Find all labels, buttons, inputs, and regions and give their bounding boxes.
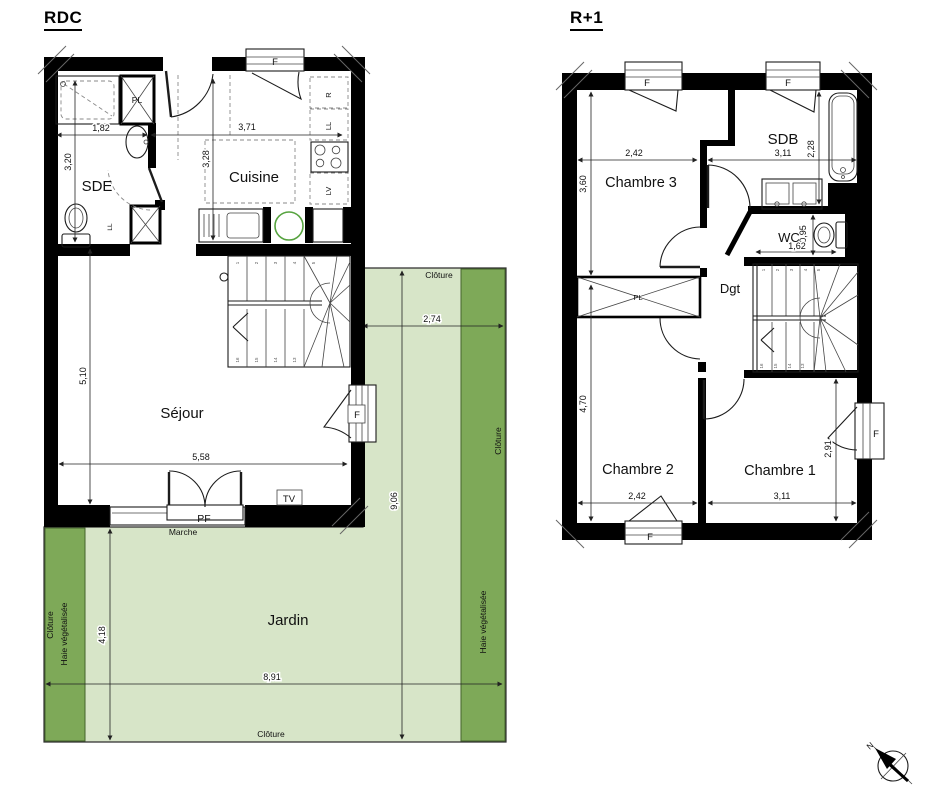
stair-step-number: 16: [235, 357, 240, 363]
window-chambre3-top: F: [625, 62, 682, 111]
staircase-rdc: 1 2 3 4 5 16 15 14 13: [220, 256, 350, 367]
stair-step-number: 13: [800, 363, 805, 369]
window-label-f-right: F: [354, 410, 360, 421]
dim-ch3-height: 3,60: [578, 175, 588, 193]
door-sde: [108, 168, 162, 210]
round-table: [275, 212, 303, 240]
room-label-cuisine: Cuisine: [229, 169, 279, 186]
dim-sdb-width: 3,11: [775, 148, 792, 158]
stair-step-number: 2: [254, 261, 259, 264]
window-label-f-top: F: [272, 57, 278, 68]
stair-step-number: 13: [292, 357, 297, 363]
window-label-f-top1: F: [644, 78, 650, 89]
fence-label-top: Clôture: [425, 270, 453, 280]
tv-outlet: TV: [277, 490, 302, 505]
closet-label-pl-r1: PL: [633, 293, 642, 302]
appliance-label-ll-sde: LL: [107, 223, 114, 231]
garden-dim-height-left: 4,18: [97, 626, 107, 644]
dim-sdb-height: 2,28: [806, 140, 816, 158]
kitchen-sink: [199, 209, 263, 242]
stair-step-number: 4: [292, 261, 297, 264]
room-label-sde: SDE: [82, 178, 113, 195]
dim-sde-height: 3,20: [63, 153, 73, 171]
fence-label-right: Clôture: [493, 427, 503, 455]
dim-sejour-width: 5,58: [192, 452, 210, 462]
toilet-r1: [814, 222, 847, 248]
dim-sejour-height: 5,10: [78, 367, 88, 385]
door-chambre1: [704, 379, 744, 419]
stair-step-number: 3: [789, 268, 794, 271]
dim-ch2-width: 2,42: [628, 491, 646, 501]
appliance-label-lv: LV: [324, 187, 333, 196]
room-label-chambre2: Chambre 2: [602, 462, 674, 478]
closet-sde-small: [131, 206, 160, 243]
stair-step-number: 14: [273, 357, 278, 363]
fence-label-left: Clôture: [45, 611, 55, 639]
hedge-strip-right: [461, 269, 505, 741]
dim-sde-width: 1,82: [92, 123, 110, 133]
wc-chamfer-wall: [727, 212, 750, 255]
north-letter: N: [865, 740, 876, 752]
stair-step-number: 2: [775, 268, 780, 271]
rdc-dimensions: 1,82 3,71 3,20 3,28 5,10 5,58: [57, 79, 347, 504]
plan-drawing: 2,74 9,06 4,18 8,91 Clôture Clôture Clôt…: [0, 0, 930, 800]
dim-ch3-width: 2,42: [625, 148, 643, 158]
appliance-label-ll: LL: [324, 122, 333, 130]
stair-step-number: 5: [816, 268, 821, 271]
stair-step-number: 1: [761, 268, 766, 271]
stair-step-number: 15: [254, 357, 259, 363]
garden-dim-width-right: 2,74: [423, 314, 441, 324]
stair-step-number: 16: [759, 363, 764, 369]
stair-step-number: 4: [803, 268, 808, 271]
stair-step-number: 15: [773, 363, 778, 369]
room-label-jardin: Jardin: [268, 612, 309, 629]
dim-ch2-height: 4,70: [578, 395, 588, 413]
kitchen-cabinet: [313, 209, 343, 242]
door-entry: [166, 71, 213, 117]
door-sdb: [708, 165, 750, 208]
stair-step-number: 1: [235, 261, 240, 264]
bathtub: [829, 93, 857, 181]
r1-plan: 1 2 3 4 5 16 15 14 13 F: [556, 62, 884, 548]
dim-cuisine-height: 3,28: [201, 150, 211, 168]
fence-label-bottom: Clôture: [257, 729, 285, 739]
dim-ch1-width: 3,11: [774, 491, 791, 501]
tv-label: TV: [283, 494, 296, 505]
rdc-plan: F F: [38, 46, 376, 537]
hedge-label-right: Haie végétalisée: [478, 590, 488, 653]
garden-dim-width-bottom: 8,91: [263, 672, 281, 682]
washbasin-sde: [126, 126, 148, 158]
room-label-sejour: Séjour: [160, 405, 203, 422]
room-label-chambre3: Chambre 3: [605, 175, 677, 191]
window-sdb-top: F: [766, 62, 820, 112]
window-cuisine-top: F: [246, 49, 304, 99]
door-label-pf: PF: [197, 513, 210, 525]
room-label-sdb: SDB: [768, 131, 799, 148]
room-label-chambre1: Chambre 1: [744, 463, 816, 479]
floorplan-sheet: RDC R+1 2,74 9,06 4,18 8,91 Clôture Clôt…: [0, 0, 930, 800]
french-door-pf: [110, 471, 245, 525]
door-chambre2: [660, 318, 700, 359]
staircase-r1: 1 2 3 4 5 16 15 14 13: [753, 264, 858, 372]
dim-cuisine-width: 3,71: [238, 122, 256, 132]
hedge-label-left: Haie végétalisée: [59, 602, 69, 665]
stair-step-number: 14: [787, 363, 792, 369]
window-label-f-right: F: [873, 429, 879, 440]
window-label-f-top2: F: [785, 78, 791, 89]
cooktop: [311, 142, 348, 172]
room-label-dgt: Dgt: [720, 281, 741, 296]
stair-step-number: 5: [311, 261, 316, 264]
step-label-marche: Marche: [169, 527, 198, 537]
room-label-wc: WC: [778, 230, 800, 245]
toilet-rdc: [62, 204, 90, 247]
door-chambre3: [660, 227, 700, 267]
stair-step-number: 3: [273, 261, 278, 264]
closet-label-pl: PL: [132, 95, 143, 105]
compass-icon: N: [865, 740, 912, 784]
shower: [56, 76, 119, 124]
window-label-f-bottom: F: [647, 532, 653, 543]
garden-dim-height-right: 9,06: [389, 492, 399, 510]
double-washbasin: [762, 179, 822, 209]
appliance-label-fridge: R: [324, 92, 333, 98]
window-sejour-right: F: [324, 385, 376, 442]
dim-ch1-height: 2,91: [823, 440, 833, 458]
